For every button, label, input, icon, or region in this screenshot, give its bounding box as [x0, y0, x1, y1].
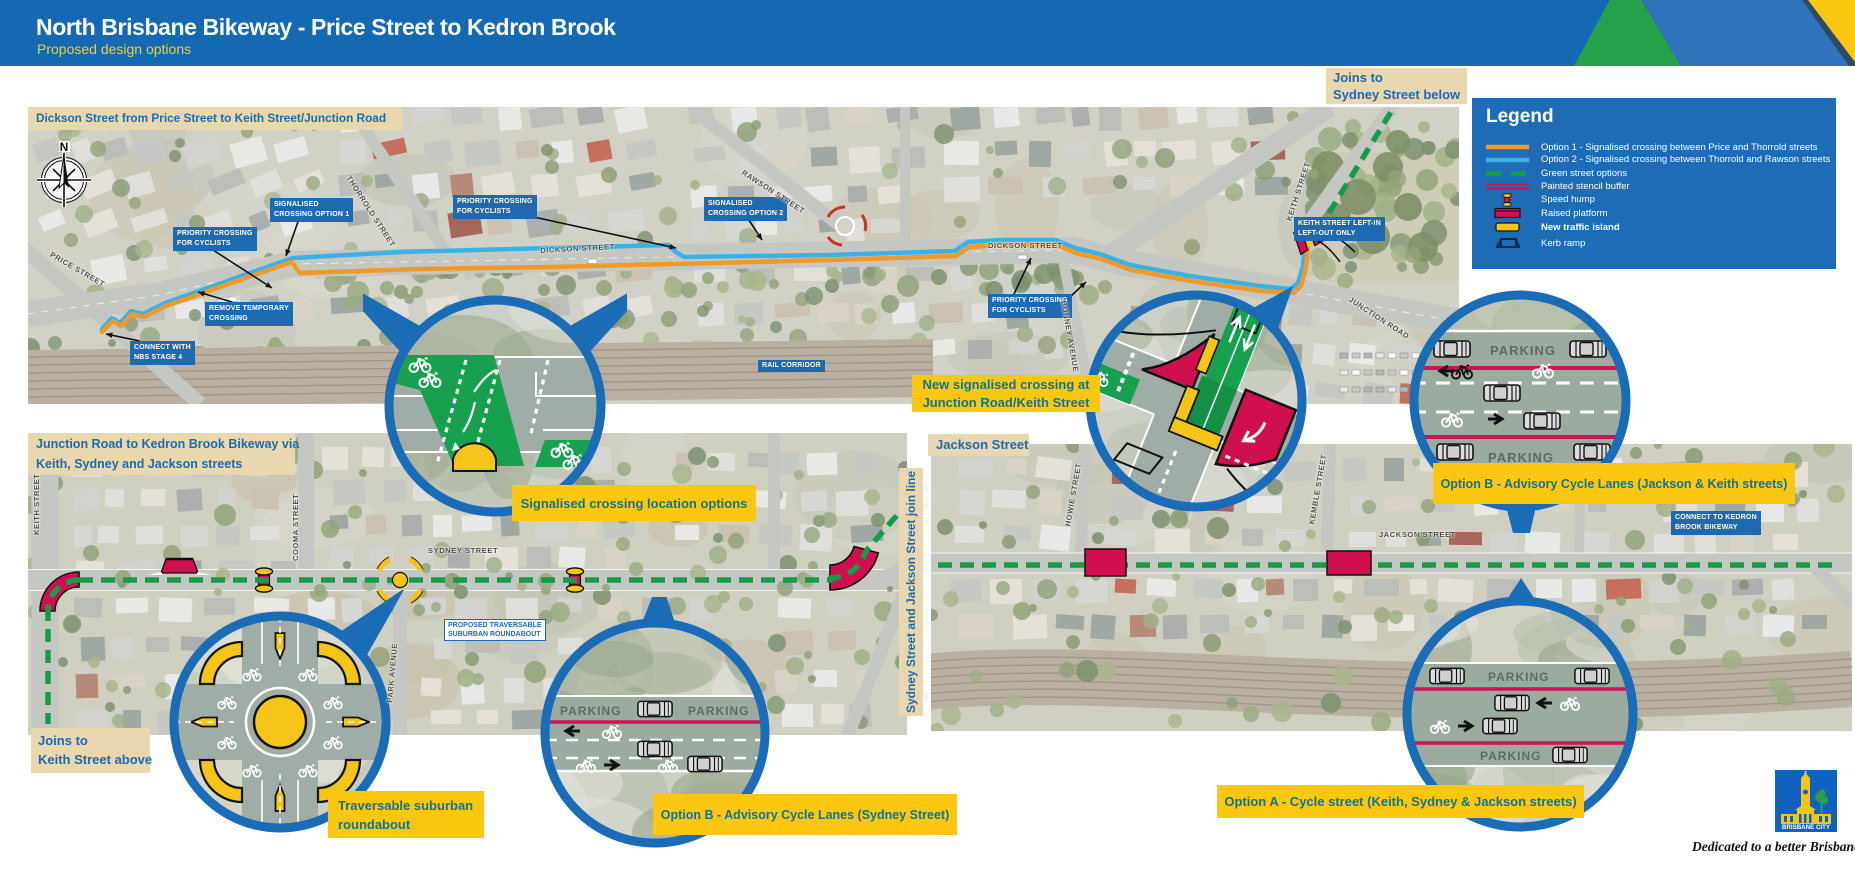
svg-text:PARKING: PARKING	[1480, 749, 1541, 763]
svg-text:PARKING: PARKING	[1490, 343, 1556, 358]
svg-text:BRISBANE CITY: BRISBANE CITY	[1782, 824, 1831, 831]
svg-text:PARKING: PARKING	[560, 704, 621, 718]
svg-text:PARKING: PARKING	[688, 704, 749, 718]
svg-text:PARKING: PARKING	[1488, 670, 1549, 684]
